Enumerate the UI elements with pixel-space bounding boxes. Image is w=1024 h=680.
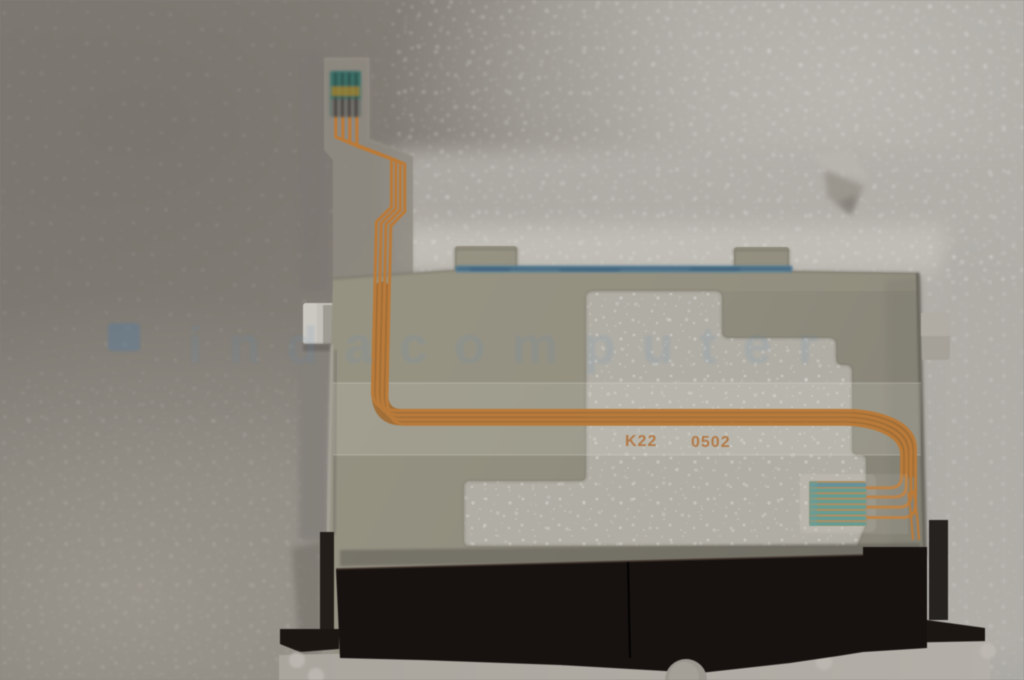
svg-text:indacomputer: indacomputer	[188, 317, 844, 375]
svg-text:0502: 0502	[691, 434, 731, 451]
svg-text:K22: K22	[625, 433, 657, 450]
